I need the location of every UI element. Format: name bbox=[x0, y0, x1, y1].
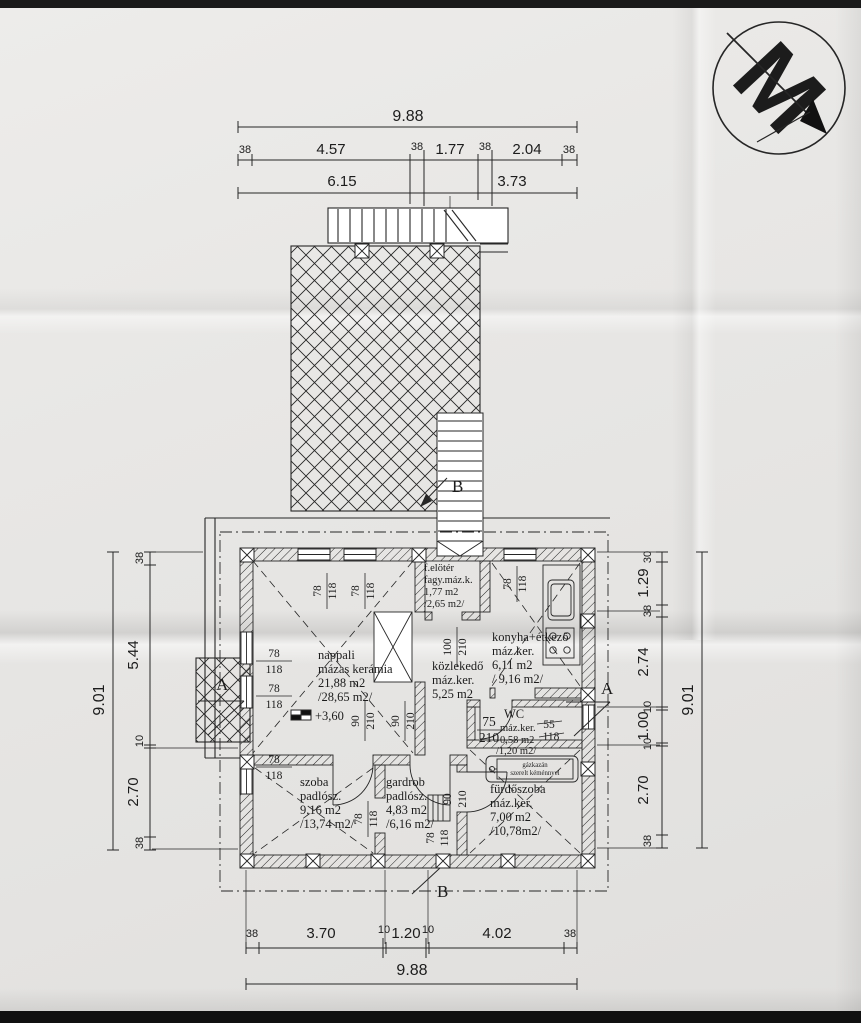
room-gardrob-finish: padlósz. bbox=[386, 789, 427, 803]
section-a-marker: A bbox=[601, 679, 614, 698]
dim-left-seg: 38 bbox=[134, 837, 146, 849]
room-konyha-gross: / 9,16 m2/ bbox=[492, 672, 544, 686]
opening-width: 78 bbox=[350, 585, 362, 597]
room-gardrob-gross: /6,16 m2/ bbox=[386, 817, 434, 831]
opening-height: 118 bbox=[368, 810, 380, 827]
opening-height: 210 bbox=[457, 790, 469, 808]
opening-width: 55 bbox=[543, 719, 555, 731]
window bbox=[504, 548, 536, 561]
opening-width: 78 bbox=[268, 754, 280, 766]
dim-right-seg: 30 bbox=[642, 551, 654, 563]
dim-top-seg: 38 bbox=[479, 141, 491, 153]
room-nappali-net: 21,88 m2 bbox=[318, 676, 365, 690]
wall-column-box bbox=[430, 244, 444, 258]
opening-height: 118 bbox=[543, 731, 560, 743]
room-furdoszoba-finish: máz.ker. bbox=[490, 796, 532, 810]
opening-height: 118 bbox=[365, 582, 377, 599]
room-wc-gross: /1,20 m2/ bbox=[496, 746, 536, 757]
elevation-marker: +3,60 bbox=[315, 709, 344, 723]
opening-height: 118 bbox=[266, 770, 283, 782]
opening-height: 210 bbox=[365, 712, 377, 730]
boiler-label-line1: gázkazán bbox=[522, 762, 548, 769]
dim-right-seg: 2.74 bbox=[635, 647, 652, 676]
dim-bottom-overall: 9.88 bbox=[396, 962, 427, 979]
section-b-marker: B bbox=[452, 477, 463, 496]
dim-right-seg: 38 bbox=[642, 835, 654, 847]
room-furdoszoba-gross: /10,78m2/ bbox=[490, 824, 542, 838]
opening-height: 118 bbox=[266, 699, 283, 711]
dim-right-overall: 9.01 bbox=[680, 684, 697, 715]
room-szoba-gross: /13,74 m2/ bbox=[300, 817, 355, 831]
opening-width: 75 bbox=[482, 714, 496, 729]
dim-bottom-seg: 4.02 bbox=[482, 925, 511, 942]
dim-right-seg: 1.00 bbox=[635, 711, 652, 740]
dim-right-seg: 10 bbox=[642, 738, 654, 750]
dim-bottom-seg: 38 bbox=[246, 928, 258, 940]
room-gardrob-name: gardrob bbox=[386, 775, 425, 789]
window bbox=[298, 548, 330, 561]
dim-top-seg: 2.04 bbox=[512, 141, 541, 158]
window bbox=[582, 705, 595, 729]
opening-width: 78 bbox=[353, 813, 365, 825]
opening-width: 78 bbox=[425, 832, 437, 844]
room-eloter-net: 1,77 m2 bbox=[424, 587, 458, 598]
dim-top-seg: 38 bbox=[563, 144, 575, 156]
opening-height: 210 bbox=[457, 638, 469, 656]
opening-width: 78 bbox=[312, 585, 324, 597]
opening-height: 210 bbox=[479, 730, 500, 745]
opening-height: 210 bbox=[405, 712, 417, 730]
window bbox=[240, 632, 253, 664]
room-eloter-finish: fagy.máz.k. bbox=[424, 575, 473, 586]
logo-letter: M bbox=[713, 23, 844, 153]
dim-top-seg: 38 bbox=[239, 144, 251, 156]
room-wc-name: WC bbox=[504, 707, 524, 721]
exterior-stair bbox=[328, 208, 508, 243]
room-eloter-name: f.elötér bbox=[424, 563, 455, 574]
opening-width: 78 bbox=[268, 683, 280, 695]
room-kozlekedo-name: közlekedő bbox=[432, 659, 483, 673]
opening-width: 90 bbox=[390, 715, 402, 727]
opening-height: 118 bbox=[439, 829, 451, 846]
room-nappali-gross: /28,65 m2/ bbox=[318, 690, 373, 704]
room-furdoszoba-name: fürdőszoba bbox=[490, 782, 546, 796]
room-kozlekedo-finish: máz.ker. bbox=[432, 673, 474, 687]
dim-top-sub: 3.73 bbox=[497, 173, 526, 190]
opening-width: 90 bbox=[350, 715, 362, 727]
dim-left-seg: 5.44 bbox=[125, 640, 142, 669]
dim-top-overall: 9.88 bbox=[392, 108, 423, 125]
dim-right-seg: 1.29 bbox=[635, 568, 652, 597]
section-b-marker: B bbox=[437, 882, 448, 901]
room-konyha-net: 6,11 m2 bbox=[492, 658, 533, 672]
boiler-label-line2: szerelt kéménnyel bbox=[510, 770, 559, 777]
dim-top-sub: 6.15 bbox=[327, 173, 356, 190]
dim-bottom-seg: 3.70 bbox=[306, 925, 335, 942]
room-nappali-finish: mázas kerámia bbox=[318, 662, 393, 676]
opening-width: 100 bbox=[442, 638, 454, 656]
room-szoba-name: szoba bbox=[300, 775, 329, 789]
dim-bottom-seg: 10 bbox=[378, 924, 390, 936]
room-nappali-name: nappali bbox=[318, 648, 355, 662]
dim-bottom-seg: 38 bbox=[564, 928, 576, 940]
room-konyha-name: konyha+étkező bbox=[492, 630, 568, 644]
bottom-dimension-chain: 38 3.70 10 1.20 10 4.02 38 9.88 bbox=[246, 870, 577, 990]
opening-width: 90 bbox=[442, 793, 454, 805]
opening-height: 118 bbox=[327, 582, 339, 599]
dim-top-seg: 1.77 bbox=[435, 141, 464, 158]
dim-right-seg: 2.70 bbox=[635, 775, 652, 804]
dim-left-seg: 38 bbox=[134, 552, 146, 564]
room-szoba-finish: padlósz. bbox=[300, 789, 341, 803]
opening-width: 78 bbox=[502, 578, 514, 590]
room-szoba-net: 9,16 m2 bbox=[300, 803, 341, 817]
room-konyha-finish: máz.ker. bbox=[492, 644, 534, 658]
dim-left-seg: 10 bbox=[134, 735, 146, 747]
floor-plan-drawing: M 9.88 38 4.57 38 1.77 38 2.04 38 6.15 bbox=[0, 0, 861, 1023]
dim-top-seg: 38 bbox=[411, 141, 423, 153]
room-wc-finish: máz.ker. bbox=[500, 723, 536, 734]
kitchen-fixtures bbox=[543, 565, 580, 665]
room-gardrob-net: 4,83 m2 bbox=[386, 803, 427, 817]
roof-outline bbox=[220, 532, 608, 891]
wall-column-box bbox=[355, 244, 369, 258]
right-dimension-chain: 30 1.29 38 2.74 10 1.00 10 2.70 38 9.01 bbox=[597, 551, 708, 848]
section-a-marker: A bbox=[216, 675, 229, 694]
room-eloter-gross: /2,65 m2/ bbox=[424, 599, 464, 610]
room-wc-net: 0,58 m2 bbox=[500, 735, 534, 746]
scanned-floor-plan-sheet: M 9.88 38 4.57 38 1.77 38 2.04 38 6.15 bbox=[0, 0, 861, 1023]
dim-left-overall: 9.01 bbox=[91, 684, 108, 715]
logo-stamp: M bbox=[713, 22, 845, 154]
dim-bottom-seg: 1.20 bbox=[391, 925, 420, 942]
kitchen-sink bbox=[548, 580, 574, 620]
opening-height: 118 bbox=[266, 664, 283, 676]
window bbox=[344, 548, 376, 561]
room-kozlekedo-net: 5,25 m2 bbox=[432, 687, 473, 701]
dim-left-seg: 2.70 bbox=[125, 777, 142, 806]
opening-height: 118 bbox=[517, 575, 529, 592]
opening-width: 78 bbox=[268, 648, 280, 660]
room-furdoszoba-net: 7,00 m2 bbox=[490, 810, 531, 824]
dim-top-seg: 4.57 bbox=[316, 141, 345, 158]
